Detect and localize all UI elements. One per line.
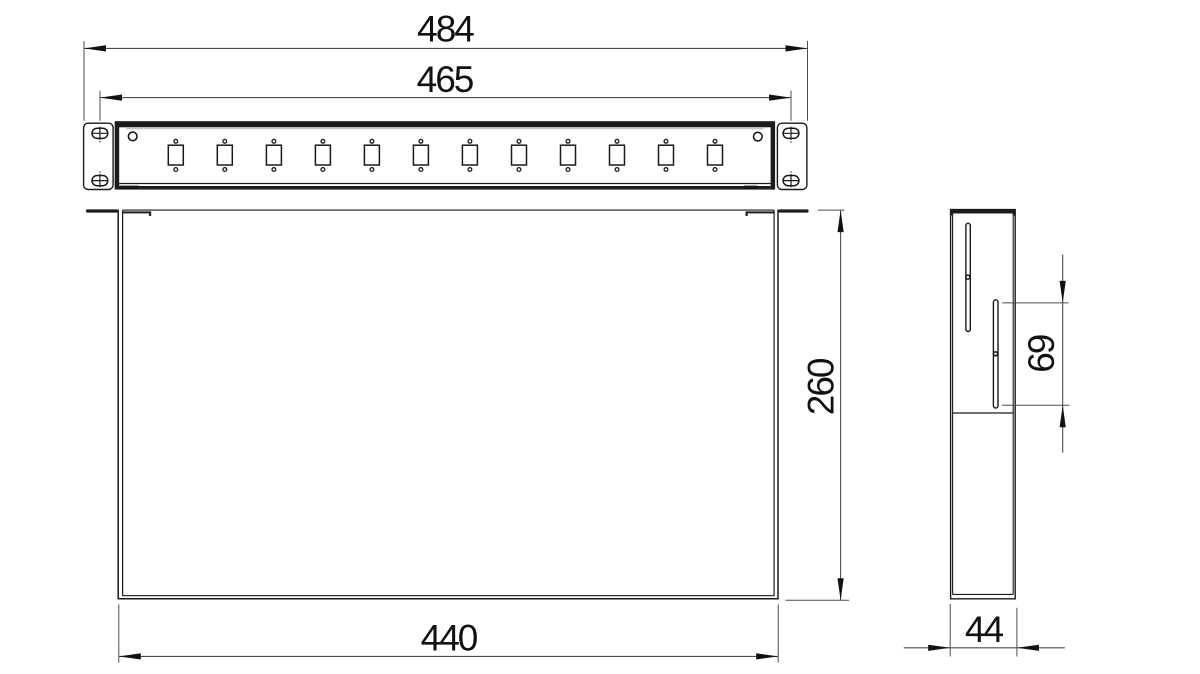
svg-text:440: 440 (421, 618, 478, 659)
svg-text:69: 69 (1021, 335, 1062, 373)
svg-text:44: 44 (965, 609, 1004, 650)
svg-text:260: 260 (801, 358, 842, 415)
svg-text:484: 484 (417, 9, 474, 50)
svg-text:465: 465 (417, 59, 474, 100)
